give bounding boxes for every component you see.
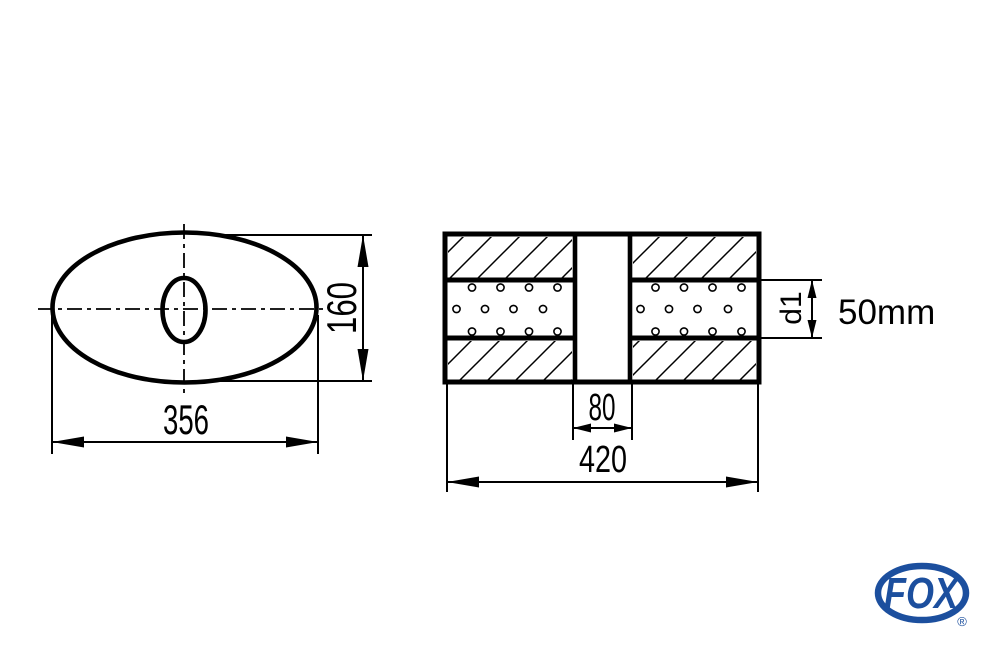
- hatch-area-top-left: [448, 237, 572, 278]
- perforation-hole: [481, 305, 488, 312]
- perforation-hole: [497, 284, 504, 291]
- perforation-hole: [665, 305, 672, 312]
- perforation-hole: [680, 328, 687, 335]
- perforation-hole: [694, 305, 701, 312]
- height-dimension: 160: [210, 235, 372, 381]
- perforation-hole: [709, 284, 716, 291]
- hatch-area-bottom-left: [448, 341, 572, 380]
- pipe-diameter-dimension: d1 50mm: [760, 280, 935, 338]
- perforation-hole: [468, 284, 475, 291]
- perforation-hole: [525, 284, 532, 291]
- perforation-hole: [539, 305, 546, 312]
- width-dim-label: 356: [163, 396, 209, 443]
- perforation-hole: [554, 328, 561, 335]
- perforation-hole: [453, 305, 460, 312]
- perforation-hole: [554, 284, 561, 291]
- perforation-holes: [453, 284, 745, 335]
- perforation-hole: [738, 328, 745, 335]
- perforation-hole: [468, 328, 475, 335]
- drawing-canvas: 356 160: [0, 0, 1000, 645]
- hatch-area-top-right: [633, 237, 756, 278]
- fox-logo: FOX ®: [878, 566, 967, 629]
- perforation-hole: [680, 284, 687, 291]
- front-view: 356 160: [38, 224, 372, 454]
- perforation-hole: [709, 328, 716, 335]
- perforation-hole: [497, 328, 504, 335]
- side-view: d1 50mm 80 420: [445, 234, 935, 492]
- length-dim-label: 420: [579, 439, 627, 481]
- hatch-area-bottom-right: [633, 341, 756, 380]
- perforation-hole: [510, 305, 517, 312]
- perforation-hole: [724, 305, 731, 312]
- perforation-hole: [525, 328, 532, 335]
- technical-drawing: 356 160: [0, 0, 1000, 645]
- gap-dimension: 80: [573, 384, 632, 440]
- height-dim-label: 160: [318, 282, 365, 334]
- registered-trademark-icon: ®: [957, 614, 967, 629]
- pipe-diameter-value: 50mm: [838, 293, 935, 332]
- perforation-hole: [738, 284, 745, 291]
- fox-logo-text: FOX: [884, 569, 960, 618]
- perforation-hole: [652, 328, 659, 335]
- perforation-hole: [637, 305, 644, 312]
- pipe-dim-label: d1: [775, 291, 808, 324]
- gap-dim-label: 80: [589, 387, 616, 429]
- perforation-hole: [652, 284, 659, 291]
